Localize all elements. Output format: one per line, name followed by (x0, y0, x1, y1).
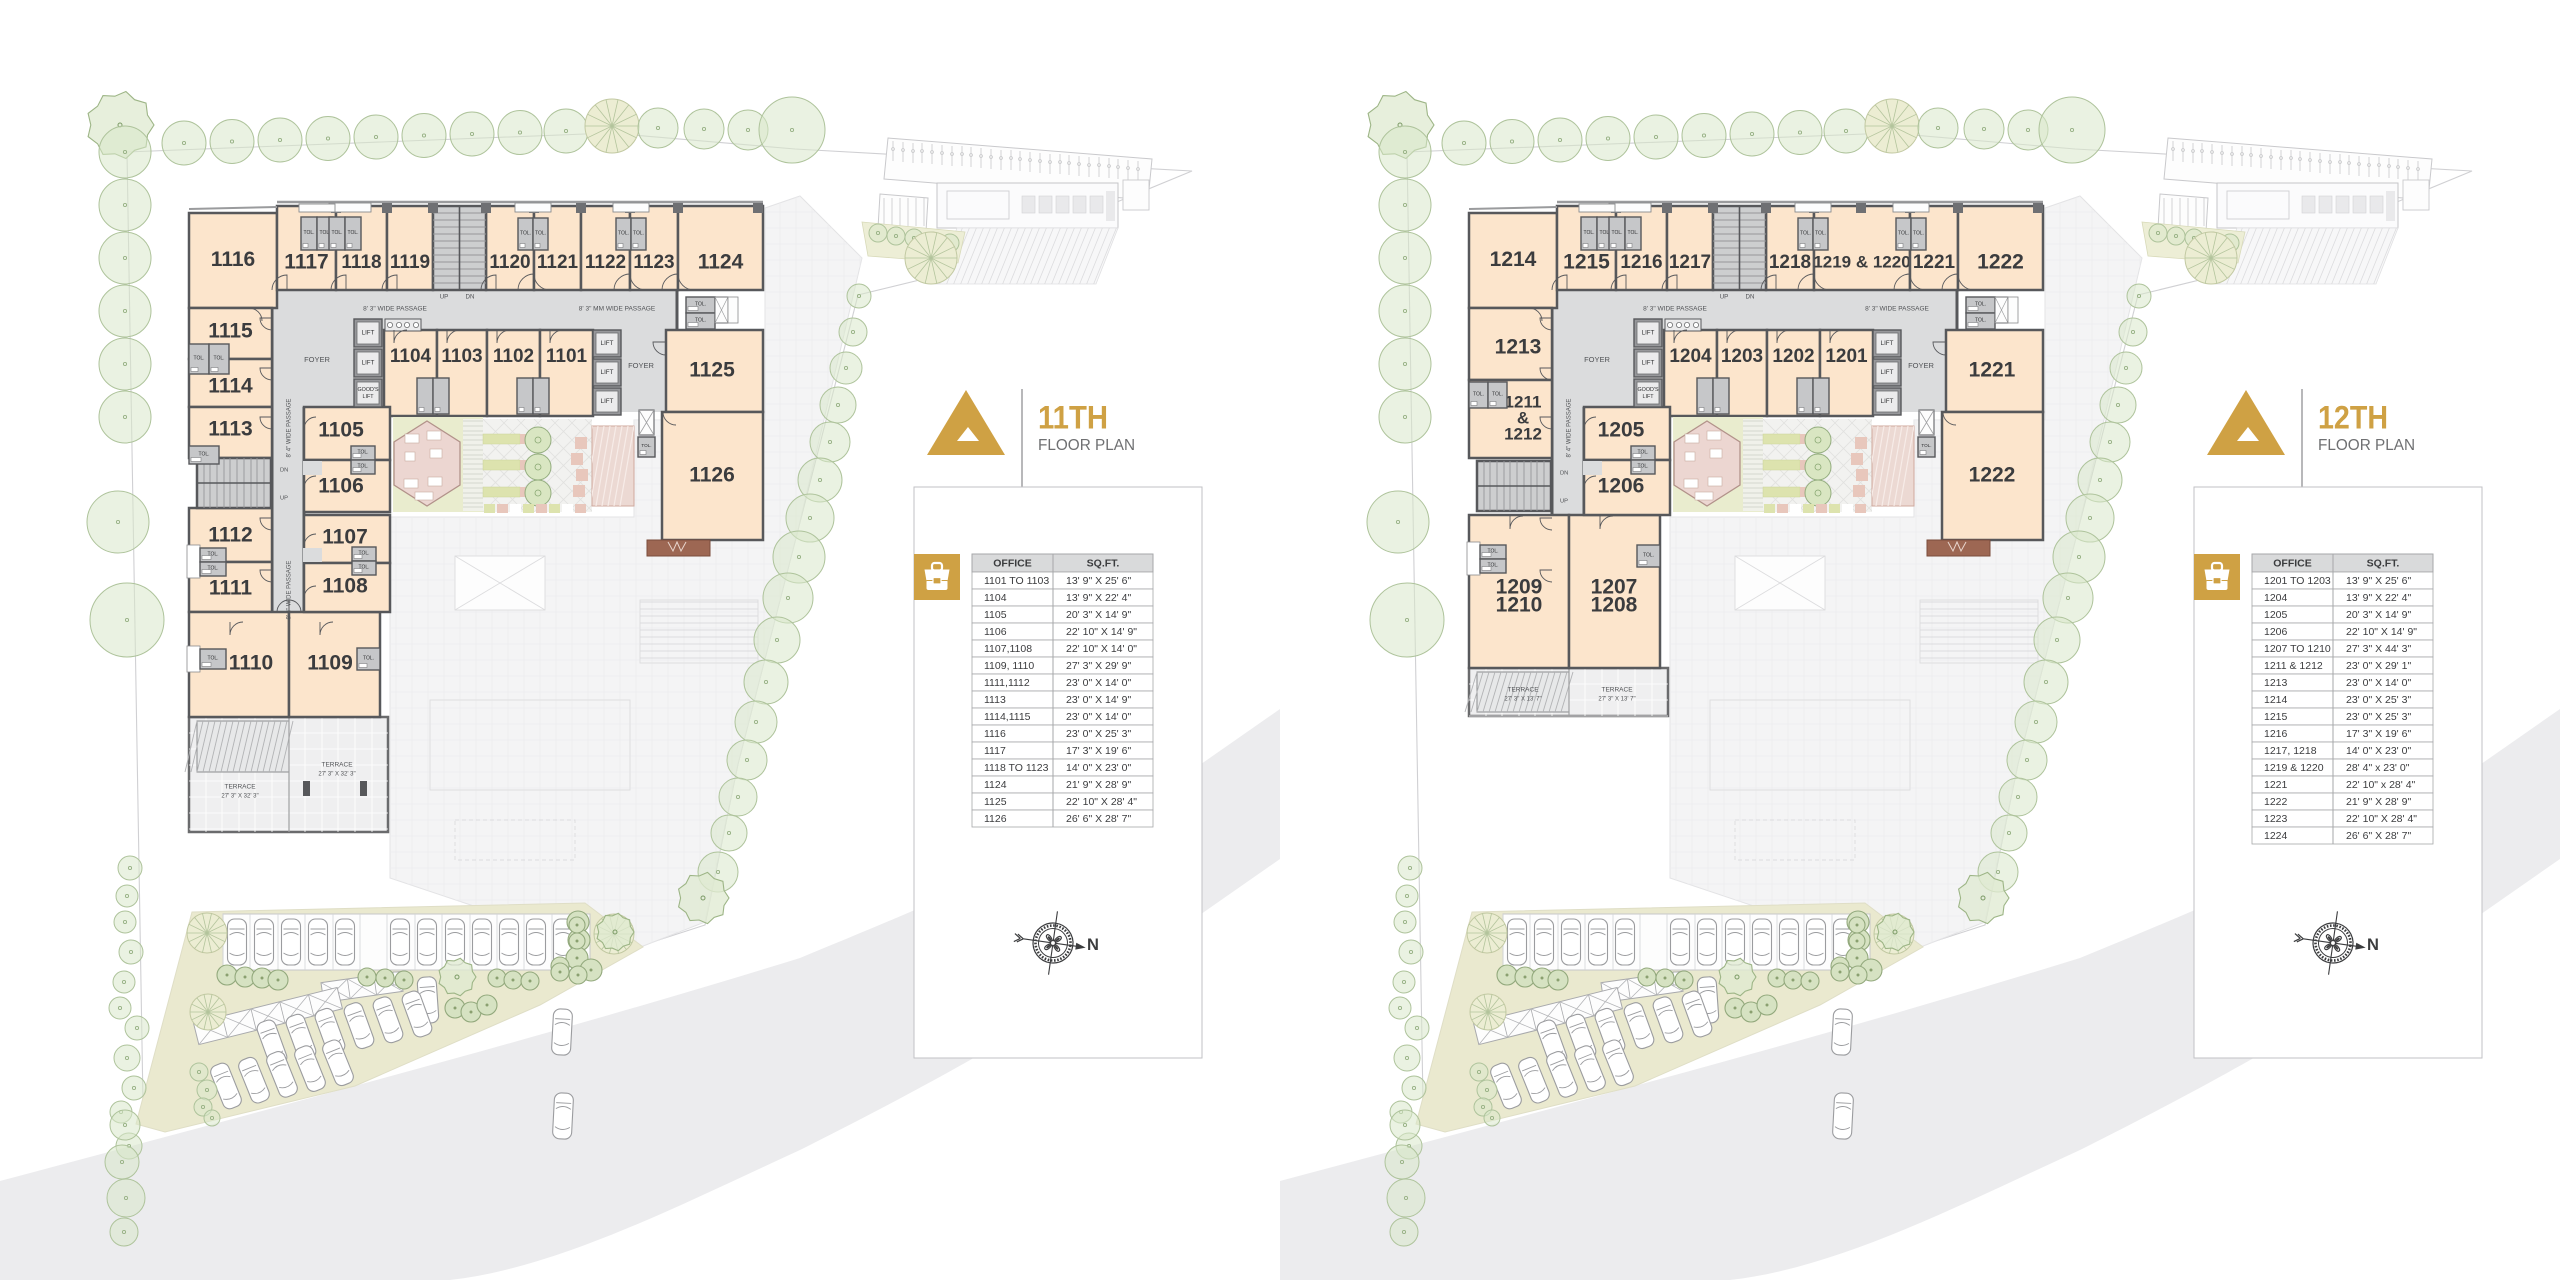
svg-text:1101: 1101 (546, 346, 588, 367)
svg-text:28' 4" x 23' 0": 28' 4" x 23' 0" (2346, 762, 2410, 774)
svg-text:TOL.: TOL. (618, 230, 629, 236)
svg-text:1211 & 1212: 1211 & 1212 (2264, 660, 2323, 672)
svg-text:22' 10" X 14' 0": 22' 10" X 14' 0" (1066, 643, 1137, 655)
svg-text:OFFICE: OFFICE (993, 557, 1032, 569)
svg-text:1105: 1105 (984, 609, 1007, 621)
svg-text:1114: 1114 (208, 375, 253, 398)
svg-text:TOL.: TOL. (1643, 552, 1654, 558)
svg-text:1221: 1221 (1913, 252, 1956, 273)
svg-text:1217: 1217 (1669, 252, 1711, 273)
svg-text:TOL.: TOL. (303, 230, 314, 236)
svg-text:1118: 1118 (341, 252, 381, 273)
svg-text:UP: UP (1720, 294, 1729, 301)
svg-text:TOL.: TOL. (357, 463, 368, 469)
svg-text:DN: DN (466, 294, 475, 301)
svg-text:GOOD'S: GOOD'S (357, 387, 379, 393)
svg-text:TOL.: TOL. (1975, 317, 1986, 323)
svg-text:TOL.: TOL. (331, 230, 342, 236)
svg-text:N: N (1087, 936, 1099, 954)
svg-text:1207 TO 1210: 1207 TO 1210 (2264, 643, 2331, 655)
svg-text:23' 0" X 14' 0": 23' 0" X 14' 0" (1066, 711, 1131, 723)
svg-text:1125: 1125 (984, 796, 1007, 808)
svg-text:TOL.: TOL. (207, 655, 218, 661)
svg-text:1215: 1215 (1563, 251, 1610, 274)
svg-text:TOL.: TOL. (363, 655, 374, 661)
svg-text:1212: 1212 (1504, 424, 1542, 443)
svg-text:8' 3" WIDE PASSAGE: 8' 3" WIDE PASSAGE (1865, 306, 1929, 313)
svg-text:OFFICE: OFFICE (2273, 557, 2312, 569)
svg-text:11TH: 11TH (1038, 399, 1108, 435)
svg-text:TOL.: TOL. (358, 550, 369, 556)
svg-text:1108: 1108 (322, 575, 368, 598)
svg-text:TOL.: TOL. (1611, 230, 1622, 236)
svg-text:13' 9" X 22' 4": 13' 9" X 22' 4" (2346, 592, 2411, 604)
svg-text:1222: 1222 (1977, 251, 2024, 274)
svg-text:1219 & 1220: 1219 & 1220 (1813, 252, 1910, 271)
svg-text:1117: 1117 (284, 251, 328, 274)
svg-text:1105: 1105 (318, 419, 364, 442)
svg-text:TOL.: TOL. (1898, 230, 1909, 236)
svg-text:FOYER: FOYER (628, 361, 654, 370)
svg-text:LIFT: LIFT (1642, 330, 1655, 337)
svg-text:1101 TO 1103: 1101 TO 1103 (984, 575, 1049, 587)
svg-text:27' 3" X 32' 3": 27' 3" X 32' 3" (221, 794, 258, 800)
svg-text:1122: 1122 (585, 252, 626, 273)
svg-text:21' 9" X 28' 9": 21' 9" X 28' 9" (1066, 779, 1131, 791)
svg-text:13' 9" X 25' 6": 13' 9" X 25' 6" (1066, 575, 1131, 587)
svg-text:1214: 1214 (2264, 694, 2288, 706)
svg-text:23' 0" X 25' 3": 23' 0" X 25' 3" (2346, 694, 2411, 706)
svg-text:UP: UP (1560, 499, 1568, 505)
svg-text:20' 3" X 14' 9": 20' 3" X 14' 9" (2346, 609, 2411, 621)
svg-text:1215: 1215 (2264, 711, 2288, 723)
svg-text:1126: 1126 (984, 813, 1007, 825)
svg-text:1221: 1221 (1969, 359, 2016, 382)
svg-text:1107: 1107 (322, 526, 368, 549)
svg-text:26' 6" X 28' 7": 26' 6" X 28' 7" (2346, 830, 2411, 842)
svg-text:1120: 1120 (489, 252, 530, 273)
svg-text:23' 0" X 25' 3": 23' 0" X 25' 3" (2346, 711, 2411, 723)
svg-text:12TH: 12TH (2318, 399, 2388, 435)
svg-text:1121: 1121 (537, 252, 579, 273)
svg-text:13' 9" X 25' 6": 13' 9" X 25' 6" (2346, 575, 2411, 587)
svg-text:1213: 1213 (2264, 677, 2288, 689)
svg-text:8' 4" WIDE PASSAGE: 8' 4" WIDE PASSAGE (287, 399, 293, 458)
svg-text:1219 & 1220: 1219 & 1220 (2264, 762, 2324, 774)
svg-text:1106: 1106 (318, 475, 364, 498)
svg-text:1107,1108: 1107,1108 (984, 643, 1032, 655)
svg-text:TOL.: TOL. (1815, 230, 1826, 236)
svg-text:1223: 1223 (2264, 813, 2288, 825)
svg-text:8' 4" WIDE PASSAGE: 8' 4" WIDE PASSAGE (1567, 399, 1573, 458)
svg-text:23' 0" X 14' 0": 23' 0" X 14' 0" (2346, 677, 2411, 689)
svg-text:1124: 1124 (698, 251, 744, 274)
svg-text:FLOOR PLAN: FLOOR PLAN (2318, 437, 2415, 454)
svg-text:1216: 1216 (1620, 252, 1662, 273)
svg-text:GOOD'S: GOOD'S (1637, 387, 1659, 393)
svg-text:1206: 1206 (1598, 475, 1645, 498)
svg-text:TERRACE: TERRACE (224, 784, 256, 791)
svg-text:TOL.: TOL. (1637, 463, 1648, 469)
svg-text:22' 10" x 28' 4": 22' 10" x 28' 4" (2346, 779, 2416, 791)
svg-text:1109, 1110: 1109, 1110 (984, 660, 1034, 672)
svg-text:17' 3" X 19' 6": 17' 3" X 19' 6" (1066, 745, 1131, 757)
svg-text:1116: 1116 (984, 728, 1006, 740)
svg-text:21' 9" X 28' 9": 21' 9" X 28' 9" (2346, 796, 2411, 808)
svg-text:DN: DN (1560, 471, 1568, 477)
svg-text:22' 10" X 14' 9": 22' 10" X 14' 9" (1066, 626, 1137, 638)
svg-text:23' 0" X 14' 9": 23' 0" X 14' 9" (1066, 694, 1131, 706)
svg-text:1113: 1113 (984, 694, 1006, 706)
svg-text:1116: 1116 (211, 248, 255, 271)
svg-text:TOL.: TOL. (535, 230, 546, 236)
svg-text:DN: DN (280, 468, 288, 474)
svg-text:23' 0" X 14' 0": 23' 0" X 14' 0" (1066, 677, 1131, 689)
svg-text:1203: 1203 (1721, 346, 1763, 367)
svg-text:LIFT: LIFT (601, 340, 614, 347)
svg-text:TOL.: TOL. (695, 301, 706, 307)
svg-text:LIFT: LIFT (1881, 340, 1894, 347)
svg-text:TOL.: TOL. (520, 230, 531, 236)
svg-text:1224: 1224 (2264, 830, 2288, 842)
svg-text:1208: 1208 (1591, 594, 1638, 617)
svg-text:1202: 1202 (1772, 346, 1814, 367)
svg-text:1214: 1214 (1490, 248, 1537, 271)
svg-text:27' 3" X 29' 9": 27' 3" X 29' 9" (1066, 660, 1131, 672)
svg-text:8' 3" WIDE PASSAGE: 8' 3" WIDE PASSAGE (363, 306, 427, 313)
svg-text:TERRACE: TERRACE (321, 762, 353, 769)
svg-text:SQ.FT.: SQ.FT. (1087, 557, 1120, 569)
svg-text:TOL.: TOL. (1913, 230, 1924, 236)
svg-text:FOYER: FOYER (1584, 355, 1610, 364)
svg-text:TOL.: TOL. (1487, 548, 1498, 554)
svg-text:1222: 1222 (2264, 796, 2288, 808)
svg-text:23' 0" X 25' 3": 23' 0" X 25' 3" (1066, 728, 1131, 740)
svg-text:TOL.: TOL. (641, 443, 651, 448)
svg-text:1201 TO 1203: 1201 TO 1203 (2264, 575, 2331, 587)
svg-text:1104: 1104 (984, 592, 1007, 604)
svg-text:TOL.: TOL. (358, 564, 369, 570)
svg-text:TOL.: TOL. (633, 230, 644, 236)
svg-text:TOL.: TOL. (193, 355, 204, 361)
svg-text:LIFT: LIFT (362, 360, 375, 367)
svg-text:TERRACE: TERRACE (1507, 687, 1539, 694)
svg-text:TOL.: TOL. (695, 317, 706, 323)
svg-text:TOL.: TOL. (347, 230, 358, 236)
svg-text:TOL.: TOL. (1473, 391, 1484, 397)
svg-text:DN: DN (1746, 294, 1755, 301)
svg-text:FOYER: FOYER (304, 355, 330, 364)
svg-text:LIFT: LIFT (362, 330, 375, 337)
svg-text:TERRACE: TERRACE (1601, 687, 1633, 694)
svg-text:1112: 1112 (208, 524, 252, 547)
svg-text:N: N (2367, 936, 2379, 954)
svg-text:1114,1115: 1114,1115 (984, 711, 1031, 723)
svg-text:8' 4" WIDE PASSAGE: 8' 4" WIDE PASSAGE (287, 561, 293, 620)
svg-text:LIFT: LIFT (1881, 369, 1894, 376)
svg-text:27' 3" X 13' 7": 27' 3" X 13' 7" (1504, 697, 1541, 703)
svg-text:TOL.: TOL. (1637, 449, 1648, 455)
svg-text:1102: 1102 (493, 346, 534, 367)
svg-text:LIFT: LIFT (362, 394, 374, 400)
svg-text:TOL.: TOL. (198, 451, 209, 457)
svg-text:TOL.: TOL. (1487, 562, 1498, 568)
svg-text:1206: 1206 (2264, 626, 2288, 638)
svg-text:TOL.: TOL. (357, 449, 368, 455)
svg-text:1109: 1109 (307, 652, 353, 675)
svg-text:1103: 1103 (441, 346, 482, 367)
svg-text:TOL.: TOL. (1921, 443, 1931, 448)
svg-text:TOL.: TOL. (1627, 230, 1638, 236)
svg-text:27' 3" X 13' 7": 27' 3" X 13' 7" (1598, 697, 1635, 703)
svg-text:FLOOR PLAN: FLOOR PLAN (1038, 437, 1135, 454)
svg-text:8' 3" MM WIDE PASSAGE: 8' 3" MM WIDE PASSAGE (579, 306, 656, 313)
svg-text:1218: 1218 (1769, 252, 1811, 273)
svg-text:TOL.: TOL. (213, 355, 224, 361)
svg-text:22' 10" X 28' 4": 22' 10" X 28' 4" (1066, 796, 1137, 808)
svg-text:1106: 1106 (984, 626, 1007, 638)
svg-text:TOL.: TOL. (1492, 391, 1503, 397)
svg-text:1124: 1124 (984, 779, 1007, 791)
svg-text:SQ.FT.: SQ.FT. (2367, 557, 2400, 569)
svg-text:TOL.: TOL. (1800, 230, 1811, 236)
svg-text:1204: 1204 (1669, 346, 1712, 367)
svg-text:1117: 1117 (984, 745, 1006, 757)
svg-text:17' 3" X 19' 6": 17' 3" X 19' 6" (2346, 728, 2411, 740)
svg-text:LIFT: LIFT (1642, 394, 1654, 400)
svg-text:LIFT: LIFT (601, 369, 614, 376)
svg-text:27' 3" X 44' 3": 27' 3" X 44' 3" (2346, 643, 2411, 655)
svg-text:23' 0" X 29' 1": 23' 0" X 29' 1" (2346, 660, 2411, 672)
svg-text:LIFT: LIFT (601, 398, 614, 405)
svg-text:LIFT: LIFT (1881, 398, 1894, 405)
svg-text:1213: 1213 (1495, 336, 1542, 359)
svg-text:UP: UP (440, 294, 449, 301)
svg-text:1123: 1123 (633, 252, 674, 273)
svg-text:1126: 1126 (689, 464, 735, 487)
svg-text:13' 9" X 22' 4": 13' 9" X 22' 4" (1066, 592, 1131, 604)
svg-text:1115: 1115 (208, 320, 253, 343)
svg-text:TOL.: TOL. (1583, 230, 1594, 236)
svg-text:1205: 1205 (2264, 609, 2288, 621)
svg-text:20' 3" X 14' 9": 20' 3" X 14' 9" (1066, 609, 1131, 621)
svg-text:1110: 1110 (229, 652, 273, 675)
svg-text:1119: 1119 (390, 252, 430, 273)
svg-text:1118 TO 1123: 1118 TO 1123 (984, 762, 1049, 774)
svg-text:TOL.: TOL. (207, 565, 218, 571)
svg-text:8' 3" WIDE PASSAGE: 8' 3" WIDE PASSAGE (1643, 306, 1707, 313)
svg-text:14' 0" X 23' 0": 14' 0" X 23' 0" (1066, 762, 1131, 774)
svg-text:27' 3" X 32' 3": 27' 3" X 32' 3" (318, 772, 355, 778)
svg-text:LIFT: LIFT (1642, 360, 1655, 367)
svg-text:1217, 1218: 1217, 1218 (2264, 745, 2317, 757)
svg-text:1111: 1111 (209, 577, 253, 600)
svg-text:14' 0" X 23' 0": 14' 0" X 23' 0" (2346, 745, 2411, 757)
svg-text:1125: 1125 (689, 359, 735, 382)
svg-text:1205: 1205 (1598, 419, 1645, 442)
svg-text:TOL.: TOL. (1975, 301, 1986, 307)
svg-text:1222: 1222 (1969, 464, 2016, 487)
svg-text:1210: 1210 (1496, 594, 1543, 617)
svg-text:1201: 1201 (1825, 346, 1868, 367)
svg-text:1221: 1221 (2264, 779, 2288, 791)
svg-text:22' 10" X 14' 9": 22' 10" X 14' 9" (2346, 626, 2417, 638)
svg-text:22' 10" X 28' 4": 22' 10" X 28' 4" (2346, 813, 2417, 825)
svg-text:1113: 1113 (208, 418, 252, 441)
svg-text:FOYER: FOYER (1908, 361, 1934, 370)
svg-text:1204: 1204 (2264, 592, 2288, 604)
svg-text:1111,1112: 1111,1112 (984, 677, 1030, 689)
svg-text:26' 6" X 28' 7": 26' 6" X 28' 7" (1066, 813, 1131, 825)
svg-text:1104: 1104 (390, 346, 432, 367)
svg-text:TOL.: TOL. (207, 551, 218, 557)
svg-text:1216: 1216 (2264, 728, 2288, 740)
svg-text:UP: UP (280, 496, 288, 502)
